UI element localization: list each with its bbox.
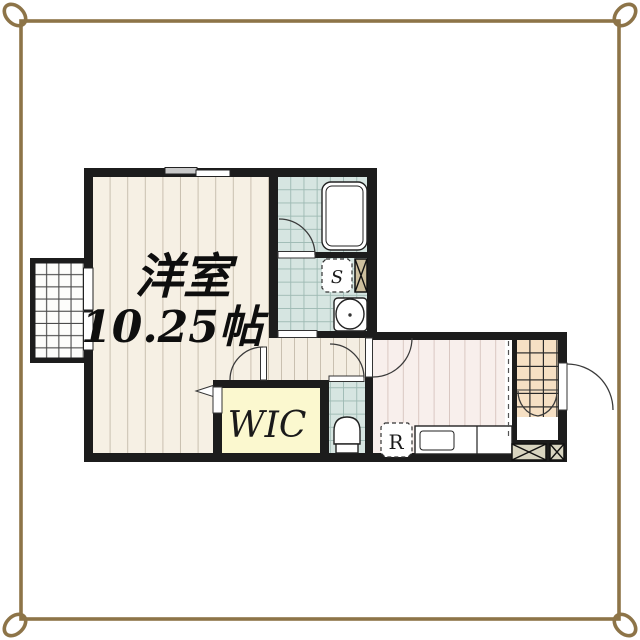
toilet-door-leaf xyxy=(329,376,364,382)
main-room-label: 洋室 xyxy=(135,249,238,305)
entrance-step xyxy=(512,417,558,440)
kitchen-door-leaf xyxy=(366,338,373,377)
corridor-floor xyxy=(269,338,365,380)
wic-label: WIC xyxy=(228,405,307,446)
balcony-wall-left xyxy=(30,258,36,363)
wall-entrance-left xyxy=(512,340,517,440)
wall-mainroom-right xyxy=(269,177,278,338)
balcony-wall-top xyxy=(30,258,84,264)
balcony-wall-bottom xyxy=(30,358,84,364)
washbasin-drain xyxy=(348,313,351,316)
entry-door-arc xyxy=(567,364,613,410)
wall-wic-top xyxy=(213,380,329,388)
washer-space-label: S xyxy=(331,267,343,288)
toilet-base xyxy=(336,444,358,453)
balcony xyxy=(30,258,84,363)
pipe-space-hatch xyxy=(355,259,367,292)
entrance-tile-floor xyxy=(517,340,558,417)
window-top-pane-left xyxy=(165,168,197,175)
frame-corner-loop-bottom-left xyxy=(0,610,30,640)
refrigerator-space-label: R xyxy=(388,430,404,454)
window-top-pane-right xyxy=(196,170,230,177)
main-room-size-label: 10.25帖 xyxy=(81,302,270,353)
toilet-room xyxy=(334,417,360,453)
bathroom-door-leaf xyxy=(278,252,315,259)
meter-box-hatch xyxy=(512,444,564,460)
screenshot: S WIC R xyxy=(0,0,640,640)
frame-corner-loop-top-left xyxy=(0,0,30,30)
frame-corner-loop-bottom-right xyxy=(610,610,640,640)
frame-corner-loop-top-right xyxy=(610,0,640,30)
wall-kitchen-top xyxy=(367,332,567,340)
bathtub xyxy=(322,182,367,250)
wall-wic-right xyxy=(320,380,329,462)
wic-door-gap xyxy=(213,387,222,413)
balcony-grid xyxy=(35,263,84,358)
toilet-bowl xyxy=(334,417,360,444)
washroom-door-leaf xyxy=(278,331,317,338)
wall-bath-washroom xyxy=(315,252,367,258)
floor-plan-canvas: S WIC R xyxy=(0,0,640,640)
wall-bath-right xyxy=(367,168,377,340)
entry-door-leaf xyxy=(559,363,568,410)
